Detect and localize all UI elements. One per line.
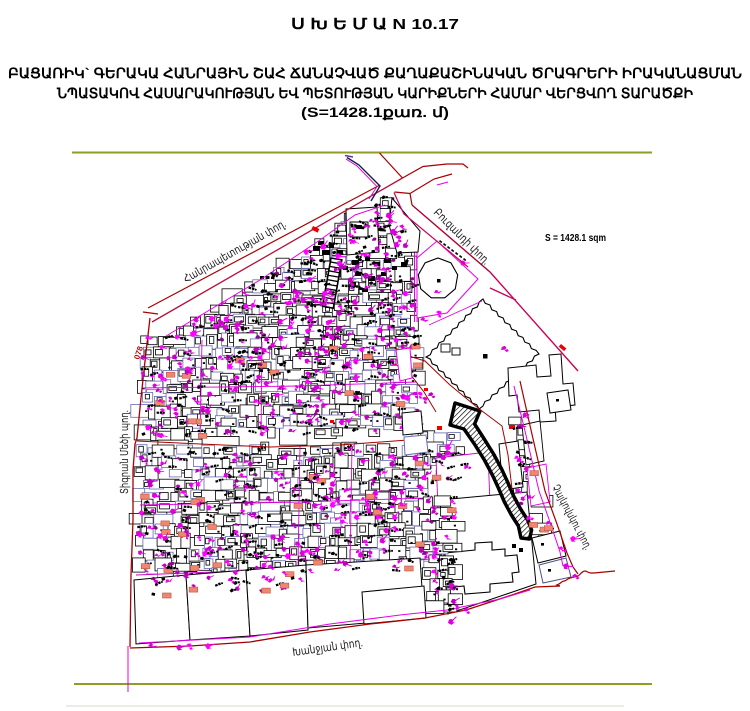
svg-text:Տիգրան Մեծի պող.: Տիգրան Մեծի պող. xyxy=(119,410,131,494)
svg-text:Խանջյան փող.: Խանջյան փող. xyxy=(292,636,364,659)
svg-text:S = 1428.1 sqm: S = 1428.1 sqm xyxy=(545,232,606,244)
svg-text:ՆՊԱՏԱԿՈՎ ՀԱՍԱՐԱԿՈՒԹՅԱՆ ԵՎ ՊԵՏՈ: ՆՊԱՏԱԿՈՎ ՀԱՍԱՐԱԿՈՒԹՅԱՆ ԵՎ ՊԵՏՈՒԹՅԱՆ ԿԱՐԻ… xyxy=(56,85,693,101)
svg-text:ԲԱՑԱՌԻԿ` ԳԵՐԱԿԱ ՀԱՆՐԱՅԻՆ ՇԱՀ Ճ: ԲԱՑԱՌԻԿ` ԳԵՐԱԿԱ ՀԱՆՐԱՅԻՆ ՇԱՀ ՃԱՆԱՉՎԱԾ ՔԱ… xyxy=(8,65,742,81)
svg-text:Ս Խ Ե Մ Ա N 10.17: Ս Խ Ե Մ Ա N 10.17 xyxy=(291,16,459,33)
svg-text:(S=1428.1քառ. մ): (S=1428.1քառ. մ) xyxy=(301,104,449,121)
